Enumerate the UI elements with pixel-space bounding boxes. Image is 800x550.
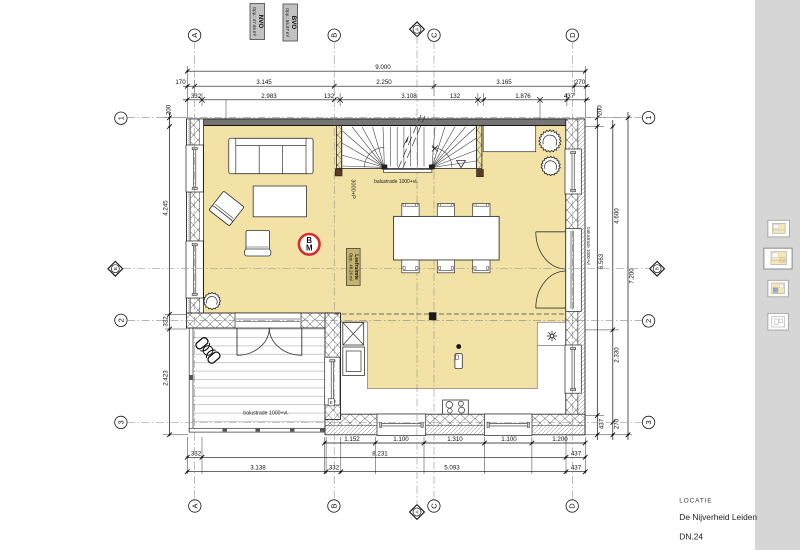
svg-text:BVO: BVO <box>290 16 297 30</box>
svg-text:3.108: 3.108 <box>401 93 417 100</box>
svg-text:E: E <box>330 400 333 405</box>
svg-text:NVO: NVO <box>257 15 264 29</box>
svg-text:D: D <box>568 503 577 509</box>
svg-text:1.100: 1.100 <box>501 436 517 443</box>
svg-text:3: 3 <box>116 420 125 424</box>
svg-text:132: 132 <box>324 93 335 100</box>
svg-text:3.138: 3.138 <box>250 465 266 472</box>
svg-text:332: 332 <box>163 316 170 327</box>
svg-text:7.200: 7.200 <box>629 268 636 284</box>
svg-text:B: B <box>113 267 118 270</box>
svg-text:2: 2 <box>644 319 653 323</box>
svg-text:balustrade 1000+vl: balustrade 1000+vl <box>586 227 591 264</box>
svg-text:437: 437 <box>599 418 606 429</box>
svg-text:3: 3 <box>644 420 653 424</box>
svg-text:Opp.: 47.66 m²: Opp.: 47.66 m² <box>252 7 257 37</box>
svg-text:200: 200 <box>165 104 172 115</box>
svg-text:132: 132 <box>450 93 461 100</box>
svg-text:332: 332 <box>191 450 202 457</box>
svg-text:6.563: 6.563 <box>598 253 605 269</box>
svg-text:170: 170 <box>175 79 186 86</box>
svg-text:1: 1 <box>116 116 125 120</box>
svg-text:1.310: 1.310 <box>447 436 463 443</box>
svg-text:332: 332 <box>191 93 202 100</box>
svg-text:270: 270 <box>614 418 621 429</box>
svg-text:2.330: 2.330 <box>613 347 620 363</box>
svg-text:D: D <box>568 32 577 38</box>
svg-text:9.000: 9.000 <box>375 64 391 71</box>
svg-text:437: 437 <box>564 93 575 100</box>
svg-text:balustrade 1000+vl.: balustrade 1000+vl. <box>243 411 288 417</box>
svg-text:200: 200 <box>596 105 603 116</box>
svg-text:4.600: 4.600 <box>613 208 620 224</box>
svg-text:1.200: 1.200 <box>552 436 568 443</box>
svg-text:1: 1 <box>644 116 653 120</box>
svg-text:C: C <box>429 503 438 509</box>
svg-text:3000+P: 3000+P <box>350 179 356 199</box>
svg-text:Opp.: 56.97 m²: Opp.: 56.97 m² <box>285 8 290 38</box>
svg-text:C: C <box>430 32 439 38</box>
svg-text:2.423: 2.423 <box>163 370 170 386</box>
svg-text:M: M <box>306 244 313 253</box>
svg-text:270: 270 <box>575 79 586 86</box>
svg-text:3.145: 3.145 <box>256 79 272 86</box>
svg-text:4.245: 4.245 <box>163 200 170 216</box>
svg-text:3.165: 3.165 <box>496 79 512 86</box>
svg-text:balustrade 1000+vl.: balustrade 1000+vl. <box>374 179 418 185</box>
svg-text:8.231: 8.231 <box>372 450 388 457</box>
svg-text:De Nijverheid Leiden: De Nijverheid Leiden <box>679 512 757 522</box>
svg-text:1.152: 1.152 <box>344 436 360 443</box>
svg-text:DN.24: DN.24 <box>679 531 703 541</box>
svg-text:2: 2 <box>116 318 125 322</box>
svg-text:A: A <box>190 503 199 508</box>
svg-text:1.100: 1.100 <box>393 436 409 443</box>
svg-text:A: A <box>190 33 199 38</box>
svg-text:B: B <box>329 503 338 508</box>
svg-text:5.093: 5.093 <box>444 465 460 472</box>
svg-text:2.983: 2.983 <box>261 93 277 100</box>
svg-text:B: B <box>330 33 339 38</box>
svg-text:2.250: 2.250 <box>376 79 392 86</box>
svg-text:Opp.: 48.26 m²: Opp.: 48.26 m² <box>348 253 353 282</box>
svg-text:1.876: 1.876 <box>515 93 531 100</box>
svg-text:B: B <box>655 267 660 270</box>
svg-text:LOCATIE: LOCATIE <box>679 498 712 505</box>
